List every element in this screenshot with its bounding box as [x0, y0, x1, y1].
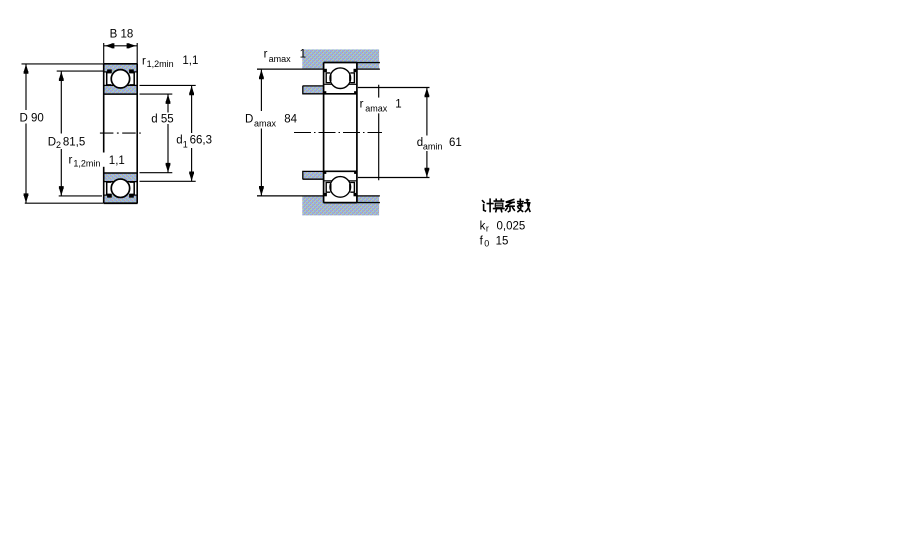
svg-text:amax: amax [365, 103, 388, 113]
svg-text:k: k [480, 220, 486, 232]
svg-text:1,1: 1,1 [182, 55, 198, 67]
svg-text:d 55: d 55 [151, 113, 173, 125]
svg-text:1,2min: 1,2min [73, 159, 100, 169]
svg-text:1: 1 [395, 99, 401, 111]
svg-text:1,1: 1,1 [109, 155, 125, 167]
svg-text:1: 1 [183, 139, 188, 149]
svg-text:2: 2 [56, 140, 61, 150]
svg-text:d: d [176, 135, 182, 147]
svg-text:r: r [486, 224, 489, 234]
svg-text:amin: amin [423, 142, 443, 152]
svg-text:amax: amax [269, 54, 292, 64]
svg-text:66,3: 66,3 [190, 135, 212, 147]
svg-text:1: 1 [300, 49, 306, 61]
svg-text:D 90: D 90 [20, 112, 44, 124]
svg-text:0,025: 0,025 [497, 220, 526, 232]
svg-text:r: r [360, 98, 364, 110]
svg-text:81,5: 81,5 [63, 136, 85, 148]
svg-text:B 18: B 18 [110, 29, 134, 41]
svg-text:D: D [48, 136, 56, 148]
svg-text:84: 84 [284, 114, 297, 126]
svg-text:r: r [264, 49, 268, 61]
svg-text:61: 61 [449, 137, 462, 149]
svg-text:1,2min: 1,2min [147, 59, 174, 69]
svg-text:0: 0 [484, 239, 489, 249]
svg-text:15: 15 [496, 235, 509, 247]
svg-text:r: r [69, 155, 73, 167]
svg-text:r: r [142, 55, 146, 67]
svg-text:D: D [245, 114, 253, 126]
svg-text:amax: amax [254, 118, 277, 128]
